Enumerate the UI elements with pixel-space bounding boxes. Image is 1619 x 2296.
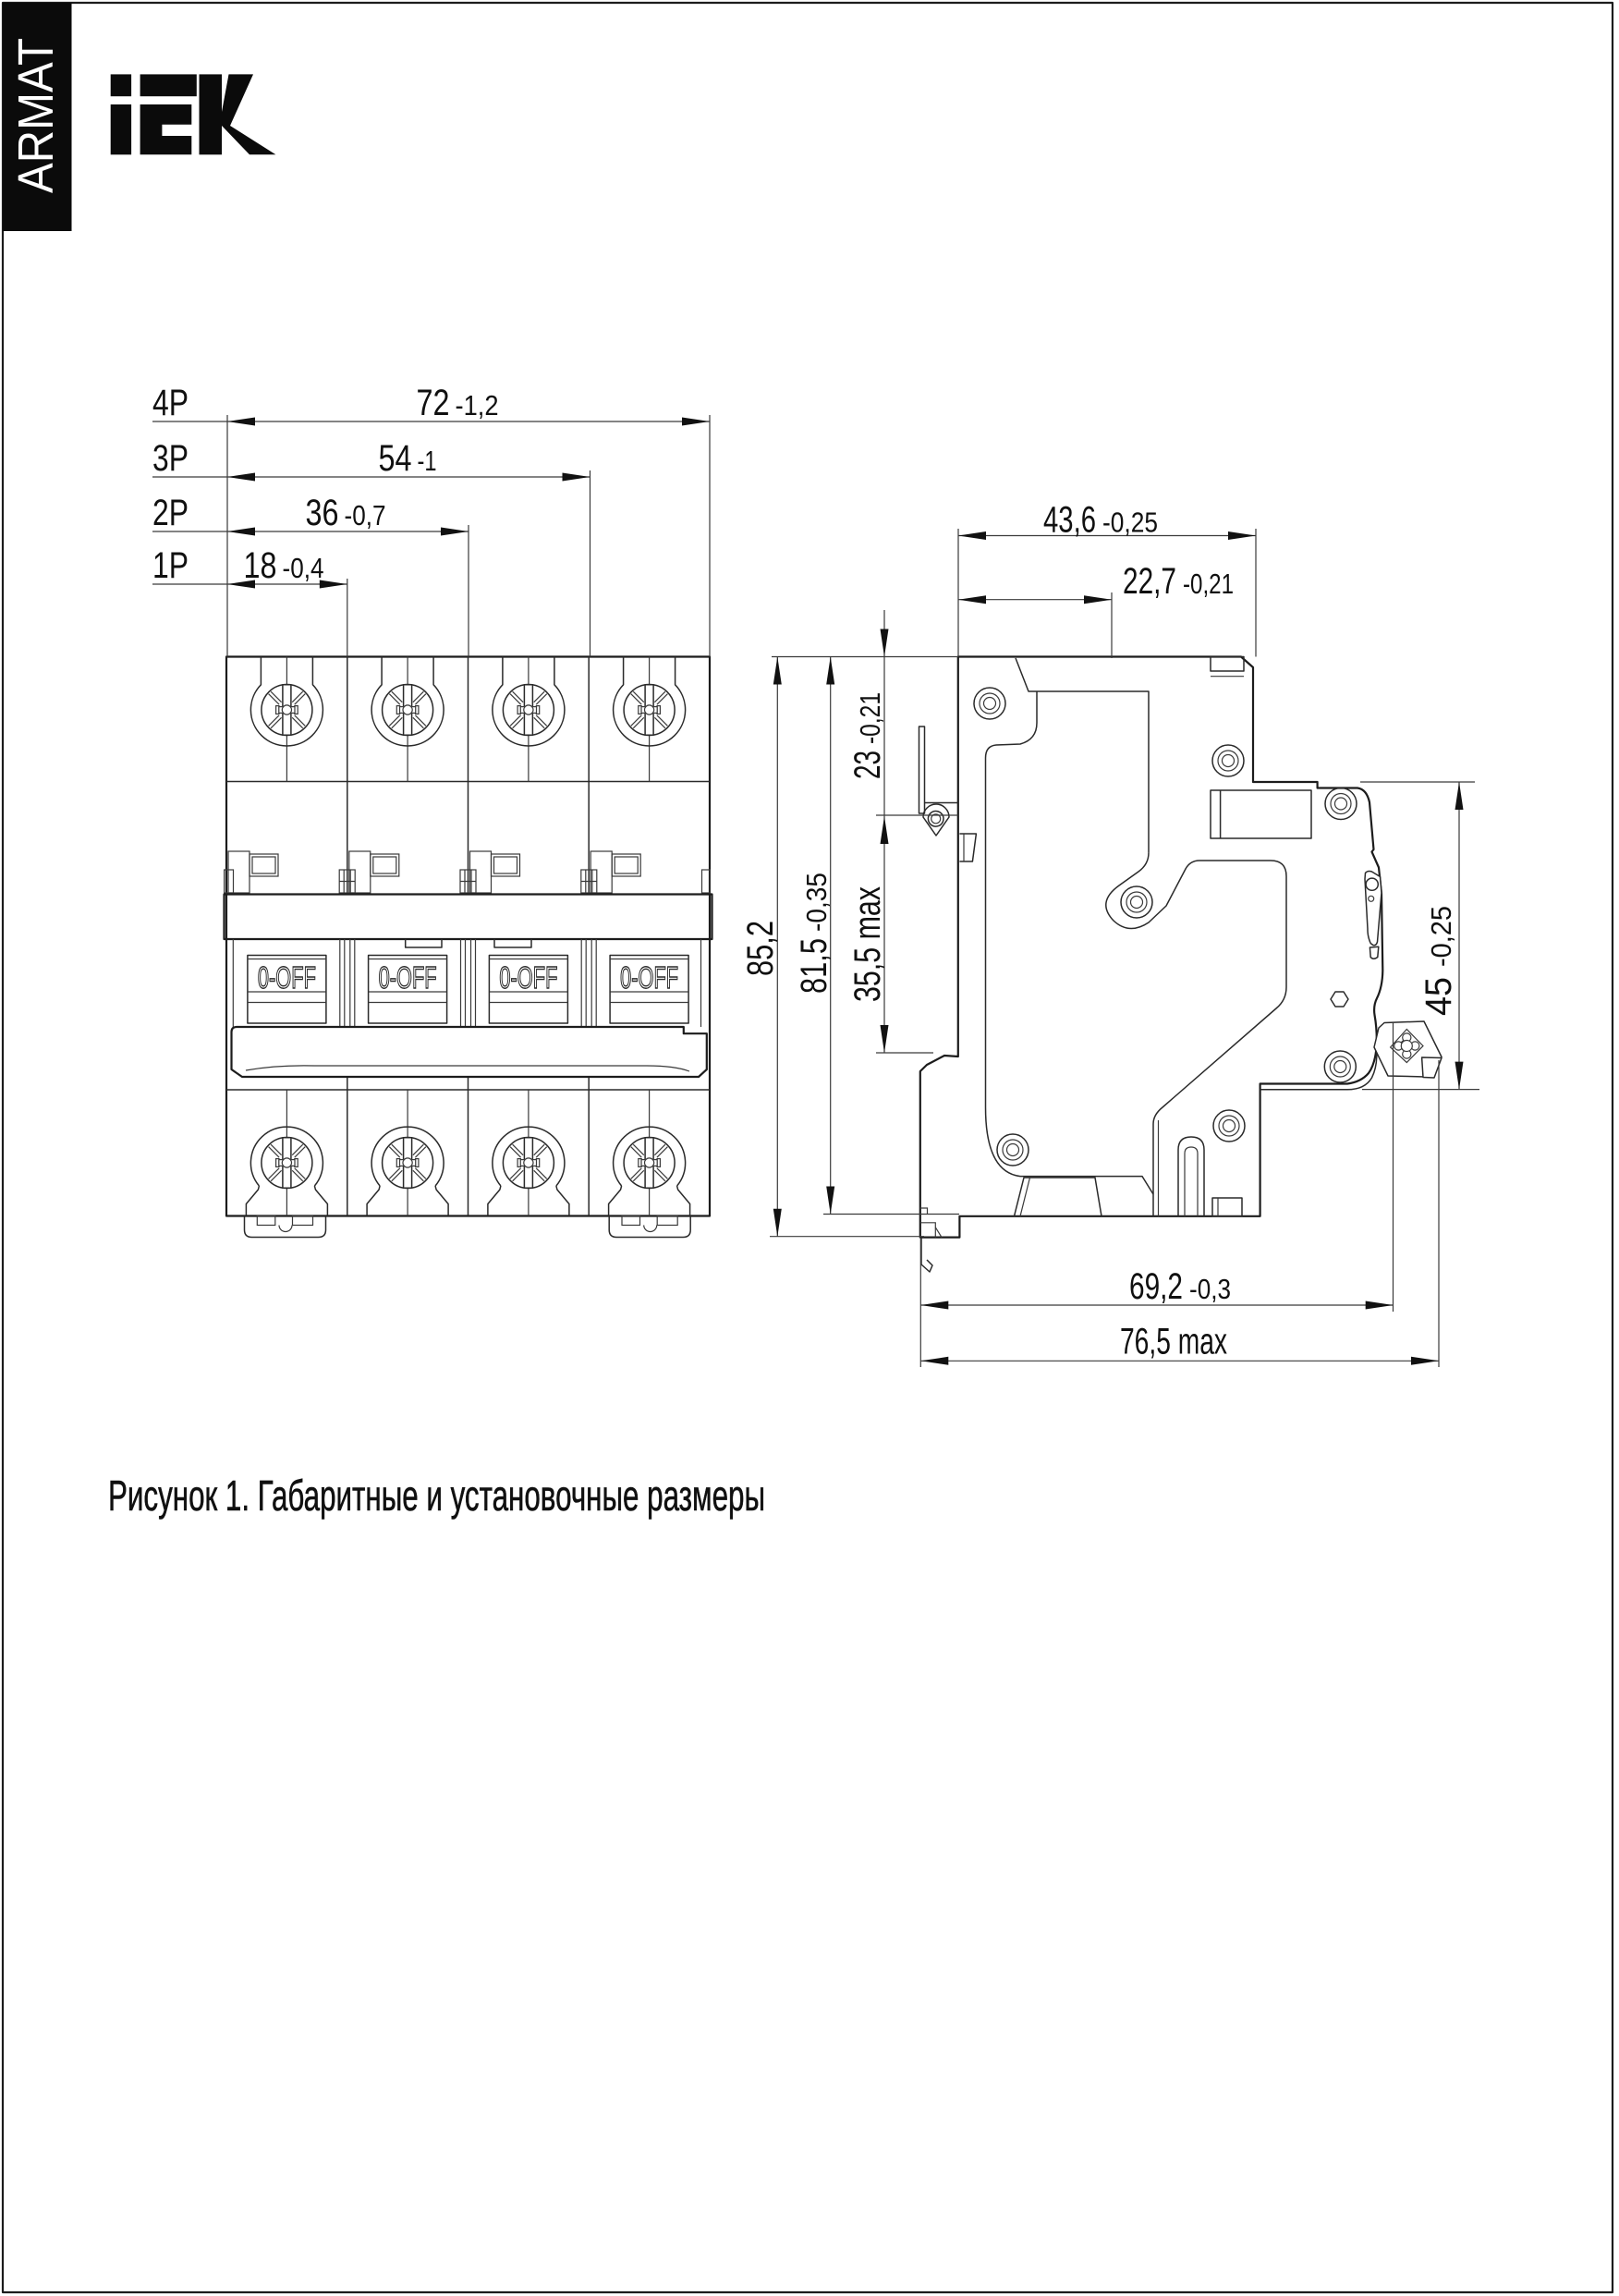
svg-text:1P: 1P bbox=[152, 545, 189, 586]
svg-text:23-0,21: 23-0,21 bbox=[847, 692, 888, 779]
svg-text:85,2: 85,2 bbox=[740, 921, 781, 976]
svg-text:0-OFF: 0-OFF bbox=[258, 960, 316, 995]
svg-text:0-OFF: 0-OFF bbox=[499, 960, 557, 995]
svg-text:18-0,4: 18-0,4 bbox=[244, 545, 324, 586]
svg-text:3P: 3P bbox=[152, 438, 189, 479]
svg-text:69,2-0,3: 69,2-0,3 bbox=[1129, 1266, 1231, 1307]
svg-text:54-1: 54-1 bbox=[379, 438, 437, 479]
svg-text:36-0,7: 36-0,7 bbox=[306, 493, 386, 533]
svg-text:35,5 max: 35,5 max bbox=[847, 886, 888, 1002]
svg-text:2P: 2P bbox=[152, 493, 189, 533]
svg-text:ARMAT: ARMAT bbox=[8, 38, 64, 193]
svg-text:0-OFF: 0-OFF bbox=[620, 960, 678, 995]
svg-text:4P: 4P bbox=[152, 383, 189, 423]
svg-text:Рисунок 1. Габаритные и устано: Рисунок 1. Габаритные и установочные раз… bbox=[108, 1472, 765, 1520]
svg-text:0-OFF: 0-OFF bbox=[379, 960, 437, 995]
svg-text:45-0,25: 45-0,25 bbox=[1418, 906, 1459, 1016]
svg-text:72-1,2: 72-1,2 bbox=[417, 383, 499, 423]
svg-text:76,5 max: 76,5 max bbox=[1120, 1322, 1227, 1362]
